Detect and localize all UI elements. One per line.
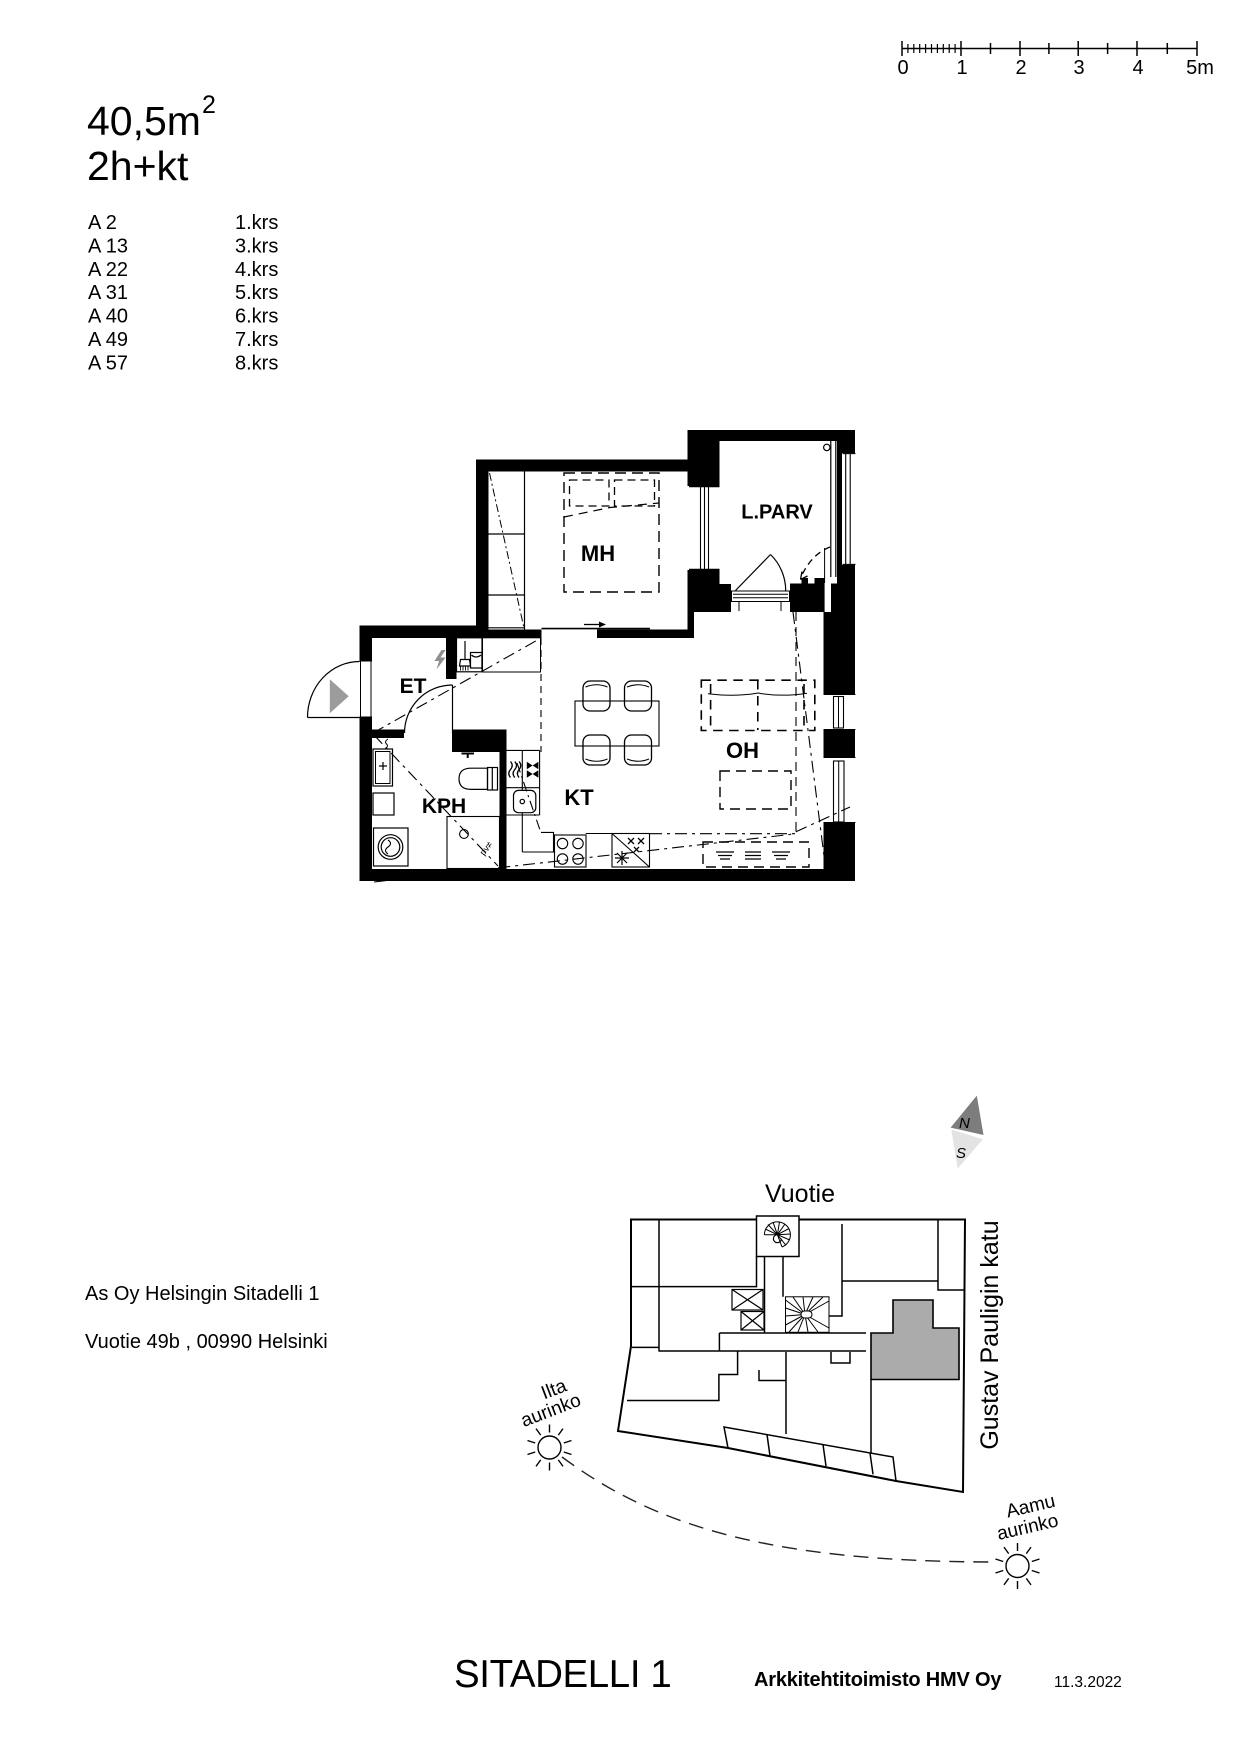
svg-text:3.krs: 3.krs — [235, 235, 278, 257]
svg-text:2: 2 — [202, 91, 216, 119]
svg-text:ET: ET — [400, 675, 427, 698]
svg-text:A 57: A 57 — [88, 352, 128, 374]
svg-text:SITADELLI 1: SITADELLI 1 — [454, 1653, 671, 1696]
svg-text:MH: MH — [581, 541, 615, 566]
svg-text:Arkkitehtitoimisto HMV Oy: Arkkitehtitoimisto HMV Oy — [754, 1669, 1002, 1691]
svg-text:Gustav Pauligin katu: Gustav Pauligin katu — [976, 1220, 1004, 1449]
svg-text:A 40: A 40 — [88, 306, 128, 328]
svg-text:S: S — [956, 1145, 966, 1162]
svg-text:A 13: A 13 — [88, 235, 128, 257]
svg-text:A 49: A 49 — [88, 329, 128, 351]
svg-text:L.PARV: L.PARV — [741, 502, 813, 524]
svg-text:7.krs: 7.krs — [235, 329, 278, 351]
svg-text:A 2: A 2 — [88, 212, 117, 234]
svg-text:A 31: A 31 — [88, 282, 128, 304]
svg-text:OH: OH — [726, 738, 759, 763]
svg-text:1.krs: 1.krs — [235, 212, 278, 234]
svg-text:2h+kt: 2h+kt — [87, 143, 189, 189]
svg-text:40,5m: 40,5m — [87, 98, 201, 144]
svg-text:Vuotie: Vuotie — [765, 1180, 835, 1208]
svg-text:6.krs: 6.krs — [235, 306, 278, 328]
svg-text:N: N — [959, 1115, 970, 1132]
svg-text:Vuotie 49b , 00990 Helsinki: Vuotie 49b , 00990 Helsinki — [85, 1331, 328, 1353]
svg-text:11.3.2022: 11.3.2022 — [1054, 1674, 1122, 1691]
svg-text:8.krs: 8.krs — [235, 352, 278, 374]
svg-text:4.krs: 4.krs — [235, 259, 278, 281]
svg-text:3: 3 — [1073, 57, 1084, 79]
svg-text:0: 0 — [897, 57, 908, 79]
svg-text:5.krs: 5.krs — [235, 282, 278, 304]
svg-text:KT: KT — [564, 785, 594, 810]
svg-text:1: 1 — [956, 57, 967, 79]
svg-text:As Oy Helsingin Sitadelli 1: As Oy Helsingin Sitadelli 1 — [85, 1283, 320, 1305]
svg-text:4: 4 — [1132, 57, 1143, 79]
svg-text:A 22: A 22 — [88, 259, 128, 281]
svg-text:2: 2 — [1015, 57, 1026, 79]
svg-text:5m: 5m — [1186, 57, 1214, 79]
svg-text:KPH: KPH — [422, 795, 466, 818]
